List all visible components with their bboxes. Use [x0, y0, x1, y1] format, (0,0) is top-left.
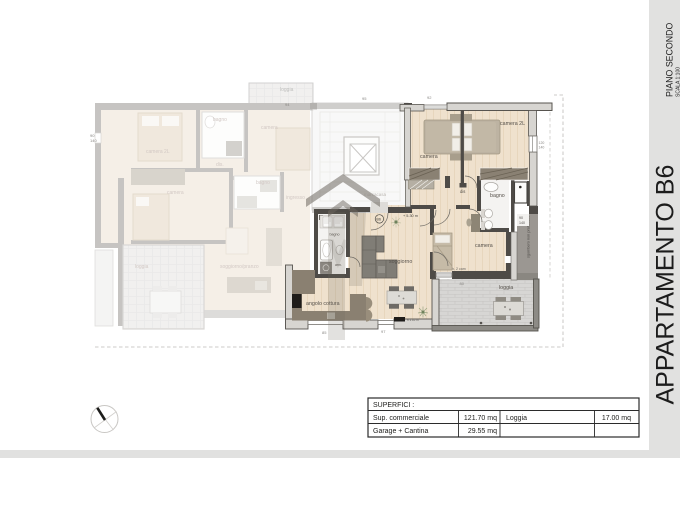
svg-text:dis: dis	[460, 189, 465, 194]
svg-text:B6: B6	[376, 218, 381, 222]
svg-text:140: 140	[539, 146, 545, 150]
svg-text:97: 97	[381, 329, 386, 334]
svg-text:bagno: bagno	[213, 117, 227, 123]
svg-text:29.55 mq: 29.55 mq	[468, 428, 497, 435]
svg-text:140: 140	[519, 221, 525, 225]
svg-text:80: 80	[460, 281, 465, 286]
svg-text:loggia: loggia	[280, 87, 294, 93]
svg-text:SCALA 1:100: SCALA 1:100	[676, 67, 680, 97]
svg-text:120: 120	[539, 141, 545, 145]
svg-text:soggiorno: soggiorno	[389, 259, 412, 265]
svg-text:soggiorno/pranzo: soggiorno/pranzo	[220, 264, 259, 270]
svg-text:90: 90	[519, 216, 523, 220]
svg-text:bagno: bagno	[490, 193, 505, 199]
svg-text:marcacasa: marcacasa	[364, 192, 387, 197]
svg-text:camera: camera	[261, 125, 278, 131]
svg-text:camera: camera	[475, 243, 493, 249]
svg-text:camera 2L: camera 2L	[500, 121, 525, 127]
svg-text:SUPERFICI :: SUPERFICI :	[373, 402, 414, 409]
svg-text:17.00 mq: 17.00 mq	[602, 415, 631, 422]
svg-text:ingresso: ingresso	[286, 195, 305, 201]
svg-text:Sup. commerciale: Sup. commerciale	[373, 415, 429, 422]
svg-text:92: 92	[427, 95, 432, 100]
svg-text:95: 95	[362, 96, 367, 101]
svg-text:85: 85	[322, 330, 327, 335]
svg-text:94: 94	[285, 102, 290, 107]
svg-text:loggia: loggia	[499, 285, 513, 291]
svg-text:121.70 mq: 121.70 mq	[464, 415, 497, 422]
svg-text:140: 140	[90, 138, 97, 143]
svg-text:dis.: dis.	[216, 162, 224, 168]
svg-text:h 1.10 m: h 1.10 m	[407, 318, 419, 322]
svg-text:Loggia: Loggia	[506, 415, 527, 422]
svg-text:Garage + Cantina: Garage + Cantina	[373, 428, 429, 435]
svg-text:bagno: bagno	[256, 180, 270, 186]
svg-text:loggia: loggia	[135, 264, 149, 270]
svg-text:camera 2L: camera 2L	[146, 149, 170, 155]
svg-text:APPARTAMENTO B6: APPARTAMENTO B6	[652, 165, 680, 405]
svg-text:+ 5.30 m: + 5.30 m	[403, 214, 418, 218]
svg-text:h. 2 cam: h. 2 cam	[452, 267, 466, 271]
svg-text:camera: camera	[420, 154, 438, 160]
svg-text:camera: camera	[167, 190, 184, 196]
svg-text:PIANO SECONDO: PIANO SECONDO	[665, 23, 675, 97]
